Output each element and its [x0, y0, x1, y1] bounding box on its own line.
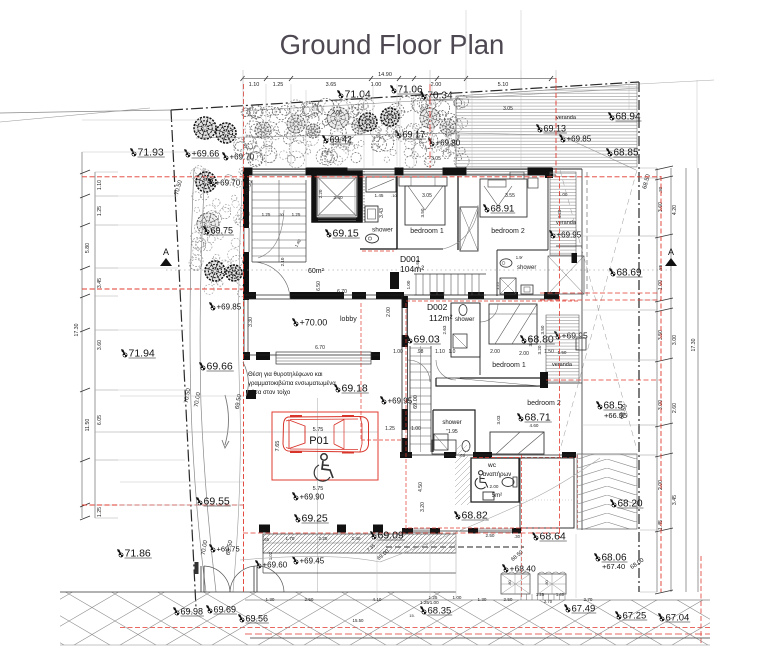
svg-text:2.20: 2.20 [318, 189, 323, 198]
svg-text:2.50: 2.50 [504, 597, 513, 602]
svg-text:4.20: 4.20 [672, 205, 678, 215]
svg-text:2.63: 2.63 [442, 325, 447, 334]
svg-text:Θέση για θυροτηλέφωνο και: Θέση για θυροτηλέφωνο και [248, 371, 323, 378]
svg-text:15.50: 15.50 [353, 618, 365, 623]
svg-text:104m²: 104m² [400, 264, 424, 274]
svg-text:1.25∕1.00: 1.25∕1.00 [420, 600, 439, 605]
svg-text:wc: wc [487, 462, 497, 469]
svg-text:1.25: 1.25 [273, 82, 284, 88]
svg-text:3.05: 3.05 [503, 106, 513, 112]
svg-text:3.20: 3.20 [420, 502, 426, 512]
svg-text:1.00: 1.00 [406, 280, 411, 289]
svg-text:+69.75: +69.75 [217, 545, 240, 554]
svg-text:60m²: 60m² [308, 268, 325, 275]
svg-text:+69.85: +69.85 [567, 135, 592, 144]
svg-text:3.50: 3.50 [540, 325, 545, 334]
svg-text:2.50: 2.50 [486, 533, 495, 538]
svg-text:+69.85: +69.85 [217, 303, 242, 312]
svg-text:+69.70: +69.70 [230, 153, 255, 162]
svg-text:3.30: 3.30 [248, 317, 254, 327]
svg-text:+69.60: +69.60 [263, 561, 288, 570]
svg-text:veranda: veranda [552, 362, 573, 368]
svg-text:2.00: 2.00 [519, 351, 529, 357]
svg-text:+69.66: +69.66 [192, 149, 220, 159]
svg-text:5m²: 5m² [492, 493, 502, 499]
svg-text:69.42: 69.42 [330, 135, 353, 145]
svg-text:1.00: 1.00 [453, 595, 462, 600]
svg-text:αναπήρων: αναπήρων [483, 471, 512, 478]
svg-text:112m²: 112m² [429, 313, 453, 323]
svg-text:4.50: 4.50 [418, 482, 424, 492]
svg-text:shower: shower [455, 317, 474, 323]
svg-text:2.00: 2.00 [332, 110, 342, 116]
svg-text:2.40: 2.40 [333, 195, 343, 201]
svg-text:3.20: 3.20 [537, 345, 542, 354]
svg-text:6.70: 6.70 [337, 289, 347, 295]
svg-text:2.70: 2.70 [584, 597, 593, 602]
svg-text:6.05: 6.05 [97, 415, 103, 425]
svg-text:+69.95: +69.95 [557, 231, 582, 240]
svg-text:+69.70: +69.70 [216, 179, 241, 188]
svg-text:3.00: 3.00 [672, 335, 678, 345]
svg-text:2.00: 2.00 [386, 307, 392, 317]
svg-text:bedroom 2: bedroom 2 [527, 400, 561, 407]
svg-text:1.45: 1.45 [375, 193, 384, 198]
svg-text:1.65: 1.65 [415, 259, 420, 268]
svg-text:2.00: 2.00 [431, 82, 442, 88]
svg-text:2.60: 2.60 [672, 403, 678, 413]
svg-text:1.25: 1.25 [495, 281, 500, 290]
svg-text:1.25: 1.25 [292, 212, 301, 217]
svg-text:+68.40: +68.40 [510, 564, 537, 574]
svg-text:1.00: 1.00 [411, 426, 421, 432]
svg-text:3.03: 3.03 [496, 415, 501, 424]
svg-text:1.00: 1.00 [393, 349, 403, 355]
svg-text:6.70: 6.70 [315, 345, 325, 351]
svg-text:.65: .65 [263, 537, 269, 542]
svg-text:1.10: 1.10 [435, 349, 445, 355]
svg-text:3.60: 3.60 [97, 340, 103, 350]
svg-text:69.69: 69.69 [214, 605, 237, 615]
svg-text:shower: shower [372, 227, 394, 234]
svg-text:6.50: 6.50 [316, 281, 322, 291]
svg-text:+67.40: +67.40 [602, 562, 625, 571]
svg-text:.30: .30 [514, 534, 520, 539]
svg-text:shower: shower [442, 420, 461, 426]
svg-text:69.75: 69.75 [211, 226, 234, 236]
svg-text:17.30: 17.30 [74, 323, 80, 336]
svg-text:14.90: 14.90 [378, 72, 392, 78]
svg-text:1.0: 1.0 [449, 349, 456, 355]
svg-text:2.50: 2.50 [305, 597, 314, 602]
svg-text:.10: .10 [391, 193, 397, 198]
svg-text:5.75: 5.75 [313, 427, 324, 433]
svg-text:1.25: 1.25 [97, 206, 103, 216]
svg-text:69.98: 69.98 [181, 607, 204, 617]
svg-text:.30: .30 [278, 212, 284, 217]
svg-text:1.10: 1.10 [249, 82, 260, 88]
svg-text:1.70: 1.70 [286, 536, 295, 541]
svg-text:69.00: 69.00 [413, 395, 419, 409]
svg-text:1.25: 1.25 [262, 212, 271, 217]
svg-text:2.40: 2.40 [352, 536, 361, 541]
svg-text:1.30: 1.30 [266, 597, 275, 602]
svg-text:1.30: 1.30 [478, 597, 487, 602]
svg-text:.80: .80 [544, 579, 549, 585]
svg-text:+69.90: +69.90 [300, 493, 325, 502]
svg-text:A: A [163, 247, 169, 257]
svg-text:+70.00: +70.00 [300, 318, 328, 328]
svg-text:.30: .30 [658, 186, 663, 193]
svg-text:69.17: 69.17 [403, 130, 426, 140]
svg-text:1.25: 1.25 [97, 507, 103, 517]
svg-text:1.00: 1.00 [371, 82, 382, 88]
svg-text:3.50: 3.50 [420, 208, 425, 217]
svg-text:2.00: 2.00 [490, 484, 499, 489]
svg-text:2.25: 2.25 [319, 536, 328, 541]
svg-text:69.56: 69.56 [246, 614, 269, 624]
svg-text:veranda: veranda [556, 115, 577, 121]
svg-text:.30: .30 [401, 426, 407, 431]
svg-text:+69.45: +69.45 [300, 557, 325, 566]
svg-text:5.10: 5.10 [498, 82, 509, 88]
svg-text:1.02: 1.02 [268, 551, 273, 560]
svg-text:5.75: 5.75 [313, 486, 324, 492]
svg-text:69.13: 69.13 [544, 124, 567, 134]
svg-text:lobby: lobby [340, 316, 357, 323]
svg-text:P01: P01 [309, 435, 329, 447]
svg-text:3.45: 3.45 [97, 278, 103, 288]
svg-text:3.65: 3.65 [326, 82, 337, 88]
svg-text:1.10: 1.10 [97, 180, 103, 190]
svg-text:bedroom 1: bedroom 1 [492, 362, 526, 369]
svg-text:15.: 15. [409, 613, 415, 618]
svg-text:5.80: 5.80 [85, 243, 91, 253]
svg-text:1.50: 1.50 [558, 350, 567, 355]
svg-text:4.60: 4.60 [530, 423, 539, 428]
svg-text:7.65: 7.65 [275, 441, 281, 452]
svg-text:bedroom 1: bedroom 1 [410, 228, 444, 235]
svg-text:γραμματοκιβώτια ενσωματωμένα: γραμματοκιβώτια ενσωματωμένα [248, 380, 336, 387]
svg-text:bedroom 2: bedroom 2 [491, 228, 525, 235]
svg-text:1.40: 1.40 [556, 592, 565, 597]
svg-text:3.45: 3.45 [672, 495, 678, 505]
svg-text:1.25: 1.25 [536, 592, 545, 597]
svg-text:17.30: 17.30 [691, 338, 697, 351]
svg-text:.98: .98 [417, 349, 424, 355]
svg-text:.80: .80 [507, 579, 512, 585]
svg-text:1.25: 1.25 [385, 426, 395, 432]
svg-text:3.05: 3.05 [431, 156, 441, 162]
svg-text:3.55: 3.55 [505, 193, 515, 199]
svg-text:2.00: 2.00 [490, 349, 500, 355]
svg-text:Ground Floor Plan: Ground Floor Plan [280, 29, 505, 60]
svg-text:3.43: 3.43 [379, 208, 385, 218]
svg-text:3.05: 3.05 [422, 193, 432, 199]
svg-text:A: A [668, 247, 674, 257]
svg-text:D002: D002 [427, 302, 448, 312]
svg-text:+69.95: +69.95 [388, 397, 413, 406]
svg-text:11.50: 11.50 [85, 419, 91, 432]
svg-text:+69.80: +69.80 [436, 139, 461, 148]
svg-text:2.70: 2.70 [544, 599, 553, 604]
